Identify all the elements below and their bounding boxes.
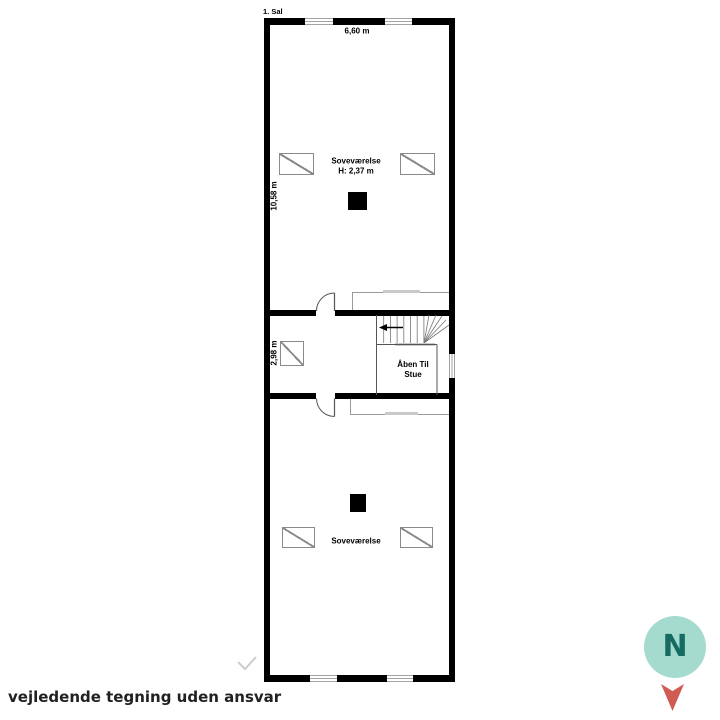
north-label: N bbox=[662, 629, 687, 664]
window-icon bbox=[305, 18, 333, 25]
floor-plan: 1. Sal 6,60 m 10,58 m Soveværelse H: 2,3… bbox=[0, 0, 720, 720]
disclaimer-text: vejledende tegning uden ansvar bbox=[8, 688, 281, 706]
stair-direction-arrow-icon bbox=[379, 324, 403, 331]
floor-label: 1. Sal bbox=[263, 7, 283, 16]
skylight-window-icon bbox=[282, 527, 315, 548]
skylight-window-icon bbox=[279, 153, 314, 175]
skylight-window-icon bbox=[280, 341, 304, 366]
dimension-length: 10,58 m bbox=[270, 181, 279, 210]
north-compass: N bbox=[644, 616, 706, 678]
chimney bbox=[348, 192, 367, 210]
compass-arrow-icon bbox=[660, 683, 685, 712]
stairs-icon bbox=[376, 315, 450, 395]
window-icon bbox=[387, 675, 413, 682]
window-icon bbox=[385, 18, 412, 25]
dimension-hall: 2,98 m bbox=[270, 341, 279, 366]
down-arrow bbox=[661, 684, 684, 711]
window-icon bbox=[310, 675, 337, 682]
wall-bottom bbox=[264, 675, 455, 682]
handrail bbox=[385, 412, 418, 415]
handrail bbox=[383, 290, 420, 293]
wall-divider-upper-left bbox=[264, 310, 316, 316]
skylight-window-icon bbox=[400, 527, 433, 548]
railing bbox=[352, 292, 353, 310]
chimney bbox=[350, 494, 366, 512]
railing bbox=[350, 399, 351, 415]
void-label: Åben Til Stue bbox=[397, 360, 428, 380]
skylight-window-icon bbox=[400, 153, 435, 175]
door-swing-icon bbox=[315, 292, 336, 316]
wall-top bbox=[264, 18, 455, 25]
room-label-upper-bedroom: Soveværelse bbox=[331, 157, 380, 166]
dimension-width: 6,60 m bbox=[345, 27, 370, 36]
wall-divider-lower-left bbox=[264, 393, 316, 399]
winder-steps bbox=[424, 315, 449, 343]
checkmark-squiggle-icon bbox=[236, 654, 258, 672]
stair-treads bbox=[384, 316, 424, 343]
ceiling-height-label: H: 2,37 m bbox=[338, 167, 374, 176]
room-label-lower-bedroom: Soveværelse bbox=[331, 537, 380, 546]
door-swing-icon bbox=[315, 398, 336, 418]
